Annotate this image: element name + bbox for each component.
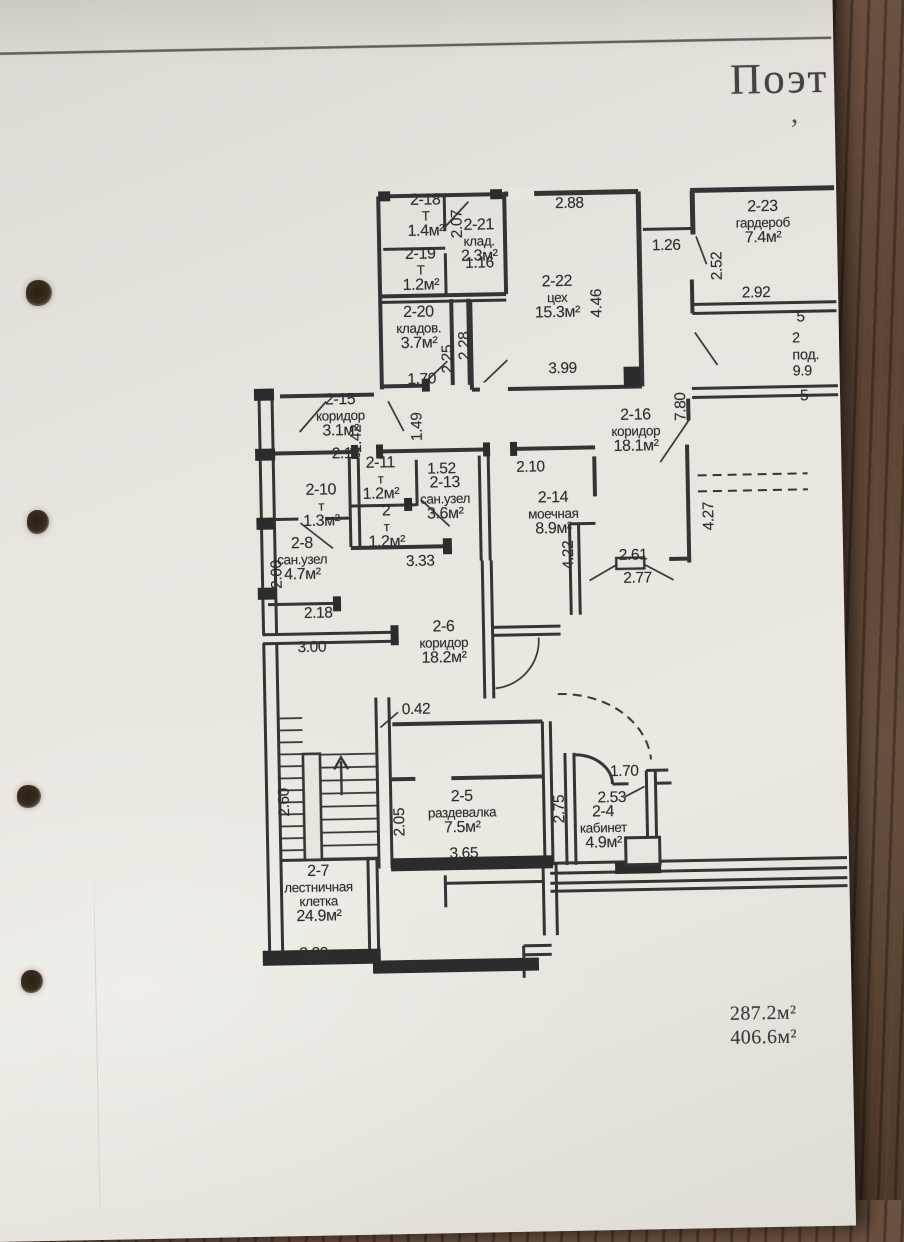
room-label-2-20: 2-20кладов.3.7м² [396, 304, 442, 352]
area-totals: 287.2м² 406.6м² [730, 1001, 797, 1051]
room-number: 2-6 [419, 619, 468, 637]
room-area: 1.2м² [368, 534, 405, 551]
room-number: 2-23 [735, 199, 790, 217]
dimension-label: 2.07 [448, 209, 467, 238]
dimension-label: 3.65 [449, 845, 478, 864]
dimension-label: 2.28 [456, 331, 475, 360]
room-label-2: 2т1.2м² [368, 503, 405, 551]
plan-walls-svg [0, 0, 856, 1208]
dimension-label: 3.99 [548, 360, 577, 379]
room-label-2-19: 2-19Т1.2м² [402, 246, 439, 294]
total-area-line2: 406.6м² [730, 1025, 797, 1051]
room-label-2-4: 2-4кабинет4.9м² [579, 804, 627, 852]
room-area: 24.9м² [285, 908, 354, 926]
room-label-2-5: 2-5раздевалка7.5м² [427, 788, 496, 837]
dimension-label: 2.53 [597, 789, 626, 808]
dimension-label: 4.27 [700, 502, 719, 531]
room-type: гардероб [735, 215, 790, 230]
room-area: 3.7м² [396, 335, 441, 352]
dimension-label: 1.16 [465, 254, 494, 273]
room-label-2-18: 2-18Т1.4м² [407, 192, 444, 240]
room-area: 18.2м² [420, 649, 469, 667]
partial-room-line: 2 [792, 330, 819, 347]
room-label-2-11: 2-11т1.2м² [362, 455, 399, 503]
shaft-box [626, 837, 661, 865]
room-label-2-13: 2-13сан.узел3.6м² [420, 475, 471, 523]
room-area: 1.3м² [303, 513, 340, 530]
room-area: 7.4м² [736, 229, 791, 247]
dashed-lines [554, 473, 813, 761]
dimension-label: 3.33 [406, 552, 435, 571]
dimension-label: 2.52 [708, 252, 727, 281]
page-title: Поэт [730, 54, 829, 105]
room-number: 2-8 [277, 536, 327, 554]
room-label-2-14: 2-14моечная8.9м² [528, 490, 579, 538]
room-area: 7.5м² [428, 819, 497, 837]
room-label-2-23: 2-23гардероб7.4м² [735, 199, 790, 247]
stair-landing-wall [303, 754, 322, 860]
room-label-2-16: 2-16коридор18.1м² [611, 407, 661, 455]
paper-sheet: Поэт , 2-18Т1.4м²2-19Т1.2м²2-21клад.2.3м… [0, 0, 856, 1242]
dimension-label: 2.10 [516, 458, 545, 477]
room-number: 2-18 [407, 192, 444, 209]
room-area: 15.3м² [535, 304, 580, 321]
dimension-label: 5 [796, 308, 805, 326]
stray-mark: , [790, 96, 798, 130]
room-area: 4.9м² [580, 834, 627, 852]
dimension-label: 4.22 [560, 540, 579, 569]
room-number: 2-20 [396, 304, 441, 321]
dimension-label: 2.92 [742, 284, 771, 303]
dimension-label: 2.05 [391, 808, 410, 837]
room-area: 1.4м² [407, 223, 444, 240]
room-area: 1.2м² [402, 277, 439, 294]
partial-room-line: под. [792, 347, 819, 364]
room-label-2-6: 2-6коридор18.2м² [419, 619, 469, 667]
room-number: 2-14 [528, 490, 579, 508]
dimension-label: 1.52 [427, 460, 456, 479]
dimension-label: 2.61 [619, 546, 648, 565]
room-label-2-7: 2-7лестничнаяклетка24.9м² [284, 863, 354, 926]
dimension-label: 1.70 [407, 370, 436, 389]
dimension-label: 2.25 [439, 345, 458, 374]
photo-of-floor-plan: { "document": { "title_partial": "Поэт",… [0, 0, 904, 1200]
room-number: 2-15 [316, 392, 365, 410]
page-top-edge-line [0, 36, 832, 73]
floor-plan: Поэт , 2-18Т1.4м²2-19Т1.2м²2-21клад.2.3м… [0, 0, 856, 1208]
dimension-label: 2.88 [555, 195, 584, 214]
room-number: 2-19 [402, 246, 439, 263]
partial-room-line: 9.9 [792, 363, 819, 380]
dimension-label: 1.26 [652, 237, 681, 256]
room-number: 2-10 [302, 482, 339, 499]
room-number: 2-22 [534, 274, 579, 291]
dimension-label: 1.70 [610, 763, 639, 782]
dimension-label: 3.00 [297, 639, 326, 658]
room-label-2-22: 2-22цех15.3м² [534, 274, 580, 322]
dimension-label: 7.80 [672, 392, 691, 421]
dimension-label: 4.46 [588, 289, 607, 318]
dimension-label: 0.42 [402, 701, 431, 720]
stair-direction-arrow [334, 757, 349, 795]
room-area: 1.2м² [362, 486, 399, 503]
room-number: 2-16 [611, 407, 660, 425]
room-area: 3.6м² [420, 505, 470, 523]
dimension-label: 2.60 [276, 788, 295, 817]
room-area: 8.9м² [528, 520, 579, 538]
dimension-label: 1.42 [348, 424, 367, 453]
dimension-label: 2.75 [551, 795, 570, 824]
room-area: 18.1м² [612, 438, 661, 456]
dimension-label: 2.77 [623, 569, 652, 588]
room-number: 2 [368, 503, 405, 520]
partial-room-label: 2под.9.9 [792, 330, 820, 381]
dimension-label: 1.49 [408, 412, 427, 441]
dimension-label: 2.00 [268, 560, 287, 589]
dimension-label: 5 [800, 387, 809, 405]
dimension-label: 3.20 [299, 945, 328, 964]
room-label-2-10: 2-10т1.3м² [302, 482, 339, 530]
dimension-label: 2.18 [304, 604, 333, 623]
room-number: 2-11 [362, 455, 399, 472]
total-area-line1: 287.2м² [730, 1001, 797, 1027]
